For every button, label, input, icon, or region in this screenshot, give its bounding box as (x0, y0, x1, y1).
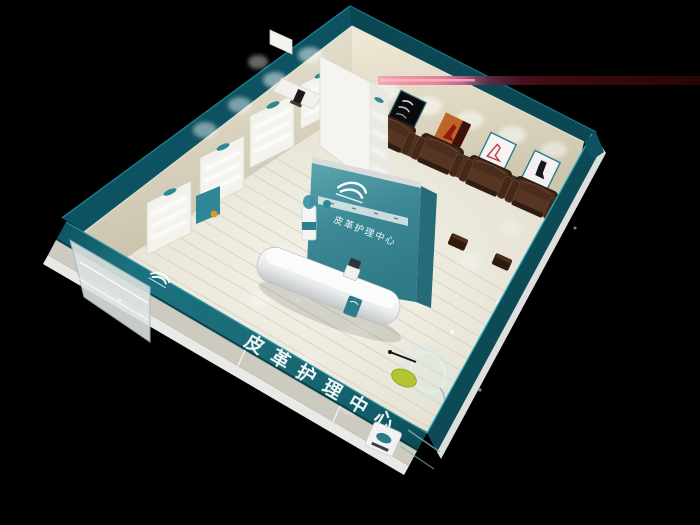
teal-canister (323, 200, 331, 208)
yellow-display-item (211, 211, 218, 218)
store-render: 皮革护理中心 (0, 0, 700, 525)
render-canvas: 皮革护理中心 (0, 0, 700, 525)
light-streak (378, 76, 700, 85)
water-bottle (303, 195, 315, 209)
